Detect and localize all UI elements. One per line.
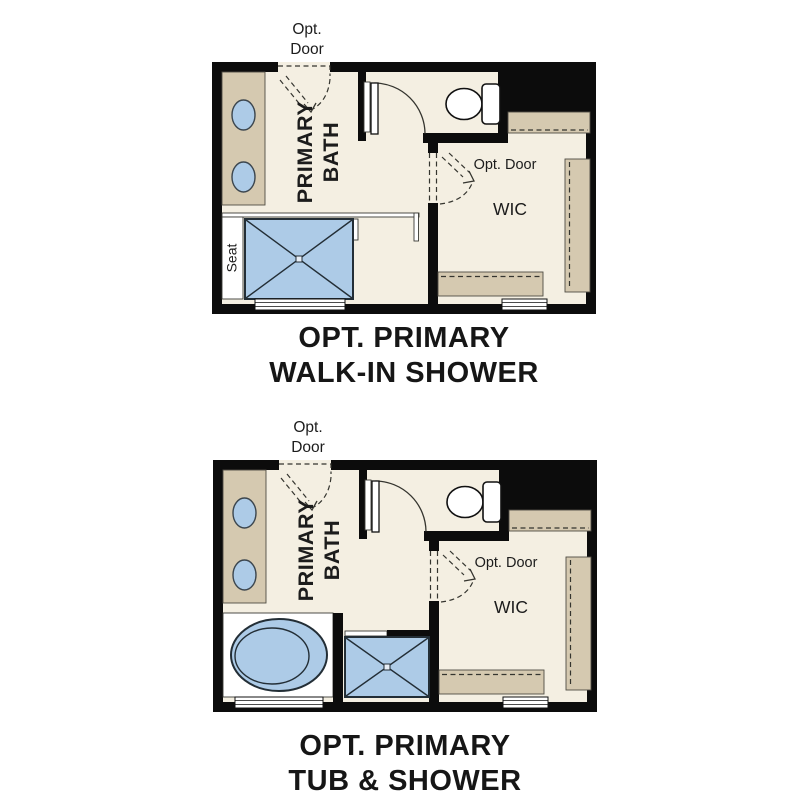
wall-corner-mass <box>499 460 597 510</box>
wall-segment <box>424 531 509 541</box>
wall-segment <box>423 133 508 143</box>
wic-window <box>503 697 548 708</box>
caption-line1: OPT. PRIMARY <box>213 729 597 764</box>
opt-door-top-label-line2: Door <box>291 439 325 456</box>
door-leaf <box>372 481 379 532</box>
caption-line1: OPT. PRIMARY <box>212 321 596 356</box>
sink <box>233 560 256 590</box>
wall-corner-mass <box>498 62 596 112</box>
wall-segment <box>428 203 438 304</box>
sink <box>233 498 256 528</box>
tub <box>231 619 327 691</box>
wic-window <box>502 299 547 310</box>
room-label-line1: PRIMARY <box>294 499 318 602</box>
wall-stub <box>429 541 439 551</box>
wic-shelf-right <box>566 557 591 690</box>
floorplan-tub-shower-drawing: Opt. Door PRIMARY BATH <box>213 408 597 712</box>
opt-door-top-label-line1: Opt. <box>292 21 321 38</box>
plan-tub-and-shower: Opt. Door PRIMARY BATH <box>213 408 597 799</box>
wall-segment <box>387 630 429 637</box>
wall-segment <box>429 601 439 702</box>
opt-door-top-label-line1: Opt. <box>293 419 322 436</box>
door-jamb <box>364 82 370 132</box>
sink <box>232 162 255 192</box>
caption-line2: TUB & SHOWER <box>213 764 597 799</box>
room-label-line2: BATH <box>320 520 344 581</box>
wic-opt-door-label: Opt. Door <box>475 555 538 571</box>
plan-walk-in-shower: Opt. Door PRIMARY BATH <box>212 10 596 391</box>
shower-glass-top <box>345 631 387 636</box>
wic-shelf-right <box>565 159 590 292</box>
top-door-opening <box>278 62 330 72</box>
wic-shelf-bottom <box>438 272 543 296</box>
top-door-opening <box>279 460 331 470</box>
caption-line2: WALK-IN SHOWER <box>212 356 596 391</box>
floorplan-page: Opt. Door PRIMARY BATH <box>0 0 810 810</box>
plan-caption-tub-shower: OPT. PRIMARY TUB & SHOWER <box>213 729 597 799</box>
wic-shelf-bottom <box>439 670 544 694</box>
room-label-line1: PRIMARY <box>293 101 317 204</box>
seat-label: Seat <box>224 243 240 272</box>
floorplan-walk-in-shower-drawing: Opt. Door PRIMARY BATH <box>212 10 596 314</box>
wic-opt-door-label: Opt. Door <box>474 157 537 173</box>
opt-door-top-label-line2: Door <box>290 41 324 58</box>
shower-glass-return <box>414 213 419 241</box>
bath-window <box>255 299 345 310</box>
door-jamb <box>365 480 371 530</box>
sink <box>232 100 255 130</box>
wall-stub <box>333 613 343 702</box>
door-leaf <box>371 83 378 134</box>
wic-label: WIC <box>494 597 528 617</box>
shower-glass-top <box>222 213 419 217</box>
plan-caption-walk-in-shower: OPT. PRIMARY WALK-IN SHOWER <box>212 321 596 391</box>
wall-stub <box>428 143 438 153</box>
shower-drain <box>296 256 302 262</box>
bath-window <box>235 697 323 708</box>
room-label-line2: BATH <box>319 122 343 183</box>
shower-drain <box>384 664 390 670</box>
wic-label: WIC <box>493 199 527 219</box>
